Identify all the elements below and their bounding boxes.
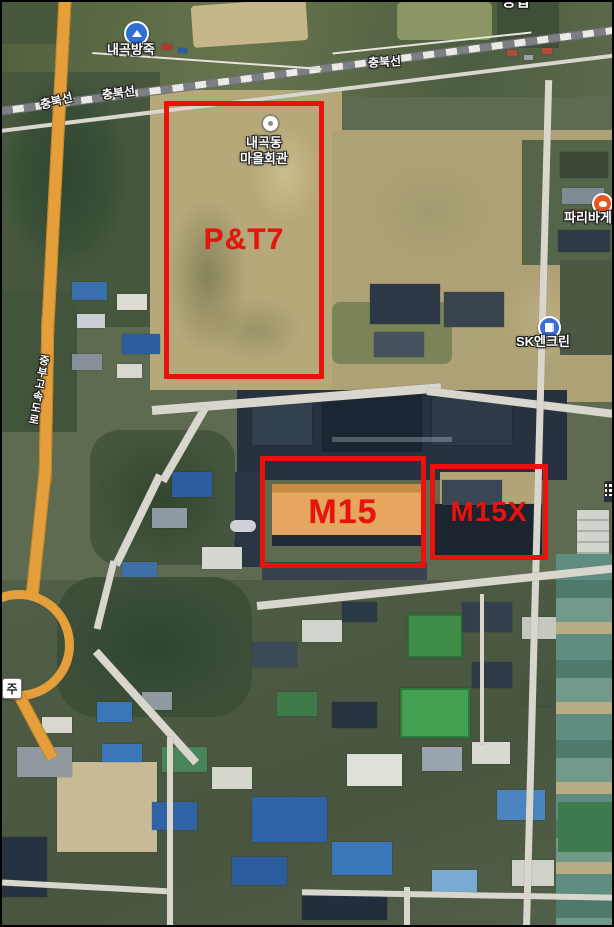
satellite-map-image: 내곡방죽 충북선 충북선 충북선 내곡동 마을회관 파리바게 SK엔크린 중부고… (0, 0, 614, 927)
building (347, 754, 402, 786)
clipped-poi-marker-caption (604, 496, 614, 502)
building (522, 617, 557, 639)
terrain-patch (2, 2, 64, 44)
building (370, 284, 440, 324)
left-edge-partial-label: 주 (6, 680, 17, 697)
building (462, 602, 512, 632)
bakery-label: 파리바게 (564, 211, 612, 225)
building (97, 702, 132, 722)
building (522, 682, 560, 706)
building (212, 767, 252, 789)
building (374, 332, 424, 357)
railway-label-3: 충북선 (368, 55, 402, 70)
building (77, 314, 105, 328)
annotation-label-m15x: M15X (450, 496, 527, 528)
terrain-forest-mid (90, 430, 235, 565)
building (472, 742, 510, 764)
building (42, 717, 72, 733)
road (167, 737, 173, 927)
building (230, 520, 256, 532)
building (172, 472, 212, 497)
annotation-label-m15: M15 (308, 493, 377, 532)
fuel-pump-icon (545, 323, 554, 332)
building (162, 44, 172, 50)
building (507, 50, 517, 56)
top-edge-partial-label: 증업 (502, 0, 530, 11)
terrain-patch (558, 802, 612, 852)
building (202, 547, 242, 569)
bakery-logo-icon (599, 201, 607, 207)
building (302, 620, 342, 642)
building (560, 152, 608, 178)
building (117, 294, 147, 310)
building (422, 747, 462, 771)
sports-field (400, 688, 470, 738)
building (178, 48, 187, 53)
annotation-label-pt7: P&T7 (204, 223, 285, 257)
building (444, 292, 504, 327)
building (524, 55, 533, 60)
annotation-box-pt7: P&T7 (164, 101, 324, 379)
building (152, 508, 187, 528)
building (252, 400, 312, 445)
building (472, 662, 512, 688)
building (342, 602, 377, 622)
building (497, 790, 545, 820)
building (102, 744, 142, 762)
left-edge-partial-label-box: 주 (2, 678, 22, 699)
building (277, 692, 317, 716)
terrain-patch (332, 437, 452, 442)
building (512, 860, 554, 886)
road (480, 594, 484, 744)
reservoir-label: 내곡방죽 (107, 43, 155, 57)
mountain-icon (132, 30, 142, 37)
building (332, 842, 392, 875)
building (577, 510, 609, 558)
sports-field (407, 614, 463, 658)
building (152, 802, 197, 830)
building (122, 334, 160, 354)
terrain-patch (191, 0, 309, 48)
building (252, 642, 297, 667)
building (542, 48, 552, 54)
building (72, 354, 102, 370)
road (404, 887, 410, 927)
annotation-box-m15: M15 (260, 456, 426, 568)
terrain-patch (397, 2, 492, 40)
building (117, 364, 142, 378)
building (332, 702, 377, 728)
building (558, 230, 610, 252)
terrain-farmland-right (556, 554, 614, 927)
building (432, 870, 477, 892)
annotation-box-m15x: M15X (430, 464, 548, 560)
building (72, 282, 107, 300)
building (232, 857, 287, 885)
building (252, 797, 327, 842)
gas-station-label: SK엔크린 (516, 335, 570, 349)
building (2, 837, 47, 897)
building (322, 394, 422, 452)
building (57, 762, 157, 852)
